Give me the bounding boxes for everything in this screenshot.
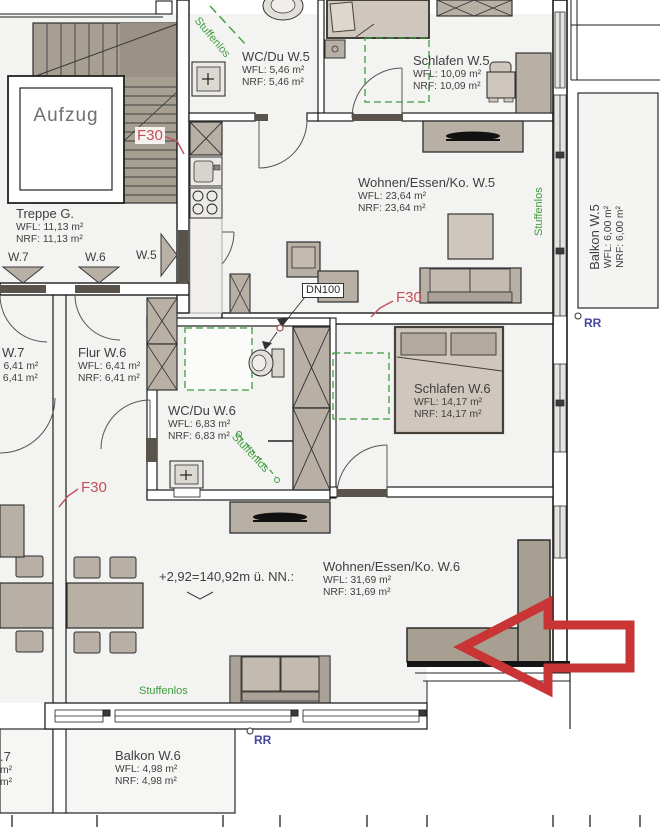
fire-rating-label-1: F30 xyxy=(135,127,165,144)
fire-rating-label-3: F30 xyxy=(81,479,107,496)
shower-w6 xyxy=(185,328,252,390)
rr-label-south: RR xyxy=(254,734,271,748)
wall-wc5-east xyxy=(318,0,324,115)
toilet-tank-w6 xyxy=(272,349,284,377)
room-label-flur-w7: Flur W.7 WFL: 6,41 m² NRF: 6,41 m² xyxy=(0,345,38,385)
room-title-aufzug: Aufzug xyxy=(33,105,98,126)
room-label-schlafen-w5: Schlafen W.5 WFL: 10,09 m² NRF: 10,09 m² xyxy=(413,53,490,93)
wall-schlafen5-south xyxy=(402,113,553,121)
room-label-aufzug: Aufzug xyxy=(20,105,112,127)
rr-label-east: RR xyxy=(584,317,601,331)
balcony-w5-area xyxy=(578,93,658,308)
sofa-w6 xyxy=(230,656,330,703)
dimension-ticks xyxy=(12,815,640,827)
drain-pipe-icon xyxy=(277,325,283,331)
room-label-schlafen-w6: Schlafen W.6 WFL: 14,17 m² NRF: 14,17 m² xyxy=(414,381,491,421)
apartment-label-w7: W.7 xyxy=(8,251,29,265)
drain-label: DN100 xyxy=(302,283,344,298)
stove-icon xyxy=(190,188,222,218)
pillow-w5 xyxy=(330,2,355,32)
room-label-wc-du-w5: WC/Du W.5 WFL: 5,46 m² NRF: 5,46 m² xyxy=(242,49,310,89)
apartment-label-w6: W.6 xyxy=(85,251,106,265)
dining-table-w6 xyxy=(67,583,143,628)
sofa-w5 xyxy=(420,268,521,303)
room-label-balkon-w7-partial: .7 m² m² xyxy=(0,749,12,789)
shower-icon-w5 xyxy=(192,62,225,96)
armchair-w5 xyxy=(287,242,320,277)
stepless-label-4: Stuffenlos xyxy=(139,685,188,698)
rr-point-south xyxy=(247,728,253,734)
flur-w6-wardrobe xyxy=(147,298,177,390)
room-label-wohnen-w5: Wohnen/Essen/Ko. W.5 WFL: 23,64 m² NRF: … xyxy=(358,175,495,215)
wardrobe-w5 xyxy=(437,0,512,16)
wall-schlafen6-south xyxy=(387,487,553,497)
balcony-divider-wall xyxy=(53,729,66,813)
desk-w5 xyxy=(487,72,515,98)
pillow-w6-left xyxy=(401,333,446,355)
room-label-wohnen-w6: Wohnen/Essen/Ko. W.6 WFL: 31,69 m² NRF: … xyxy=(323,559,460,599)
room-label-flur-w6: Flur W.6 WFL: 6,41 m² NRF: 6,41 m² xyxy=(78,345,140,385)
partial-sofa-w7 xyxy=(0,505,24,557)
room-title: Treppe G. xyxy=(16,206,83,221)
pillow-w6-right xyxy=(451,333,496,355)
floor-plan-canvas: Aufzug Treppe G. WFL: 11,13 m² NRF: 11,1… xyxy=(0,0,660,827)
level-mark: +2,92=140,92m ü. NN.: xyxy=(159,569,294,584)
room-label-treppe: Treppe G. WFL: 11,13 m² NRF: 11,13 m² xyxy=(16,206,83,246)
wall-stub-top xyxy=(156,1,172,14)
floor-lower-strip xyxy=(0,662,427,703)
fire-rating-label-2: F30 xyxy=(396,289,422,306)
cabinet-w5 xyxy=(516,53,551,113)
room-label-balkon-w5: Balkon W.5 WFL: 6,00 m² NRF: 6,00 m² xyxy=(587,204,627,270)
apartment-label-w5: W.5 xyxy=(136,249,157,263)
elevator-shaft xyxy=(8,76,124,203)
cross-cabinet-w5 xyxy=(230,274,250,313)
nightstand-w5 xyxy=(325,40,345,58)
sink-icon xyxy=(190,157,222,186)
wardrobe-column xyxy=(293,327,330,490)
kitchen-block xyxy=(190,122,222,313)
stepless-label-2: Stuffenlos xyxy=(533,187,546,236)
rr-point-east xyxy=(575,313,581,319)
room-label-balkon-w6: Balkon W.6 WFL: 4,98 m² NRF: 4,98 m² xyxy=(115,748,181,788)
coffee-table-w5 xyxy=(448,214,493,259)
washbasin-icon-w6 xyxy=(170,461,203,488)
room-label-wc-du-w6: WC/Du W.6 WFL: 6,83 m² NRF: 6,83 m² xyxy=(168,403,236,443)
